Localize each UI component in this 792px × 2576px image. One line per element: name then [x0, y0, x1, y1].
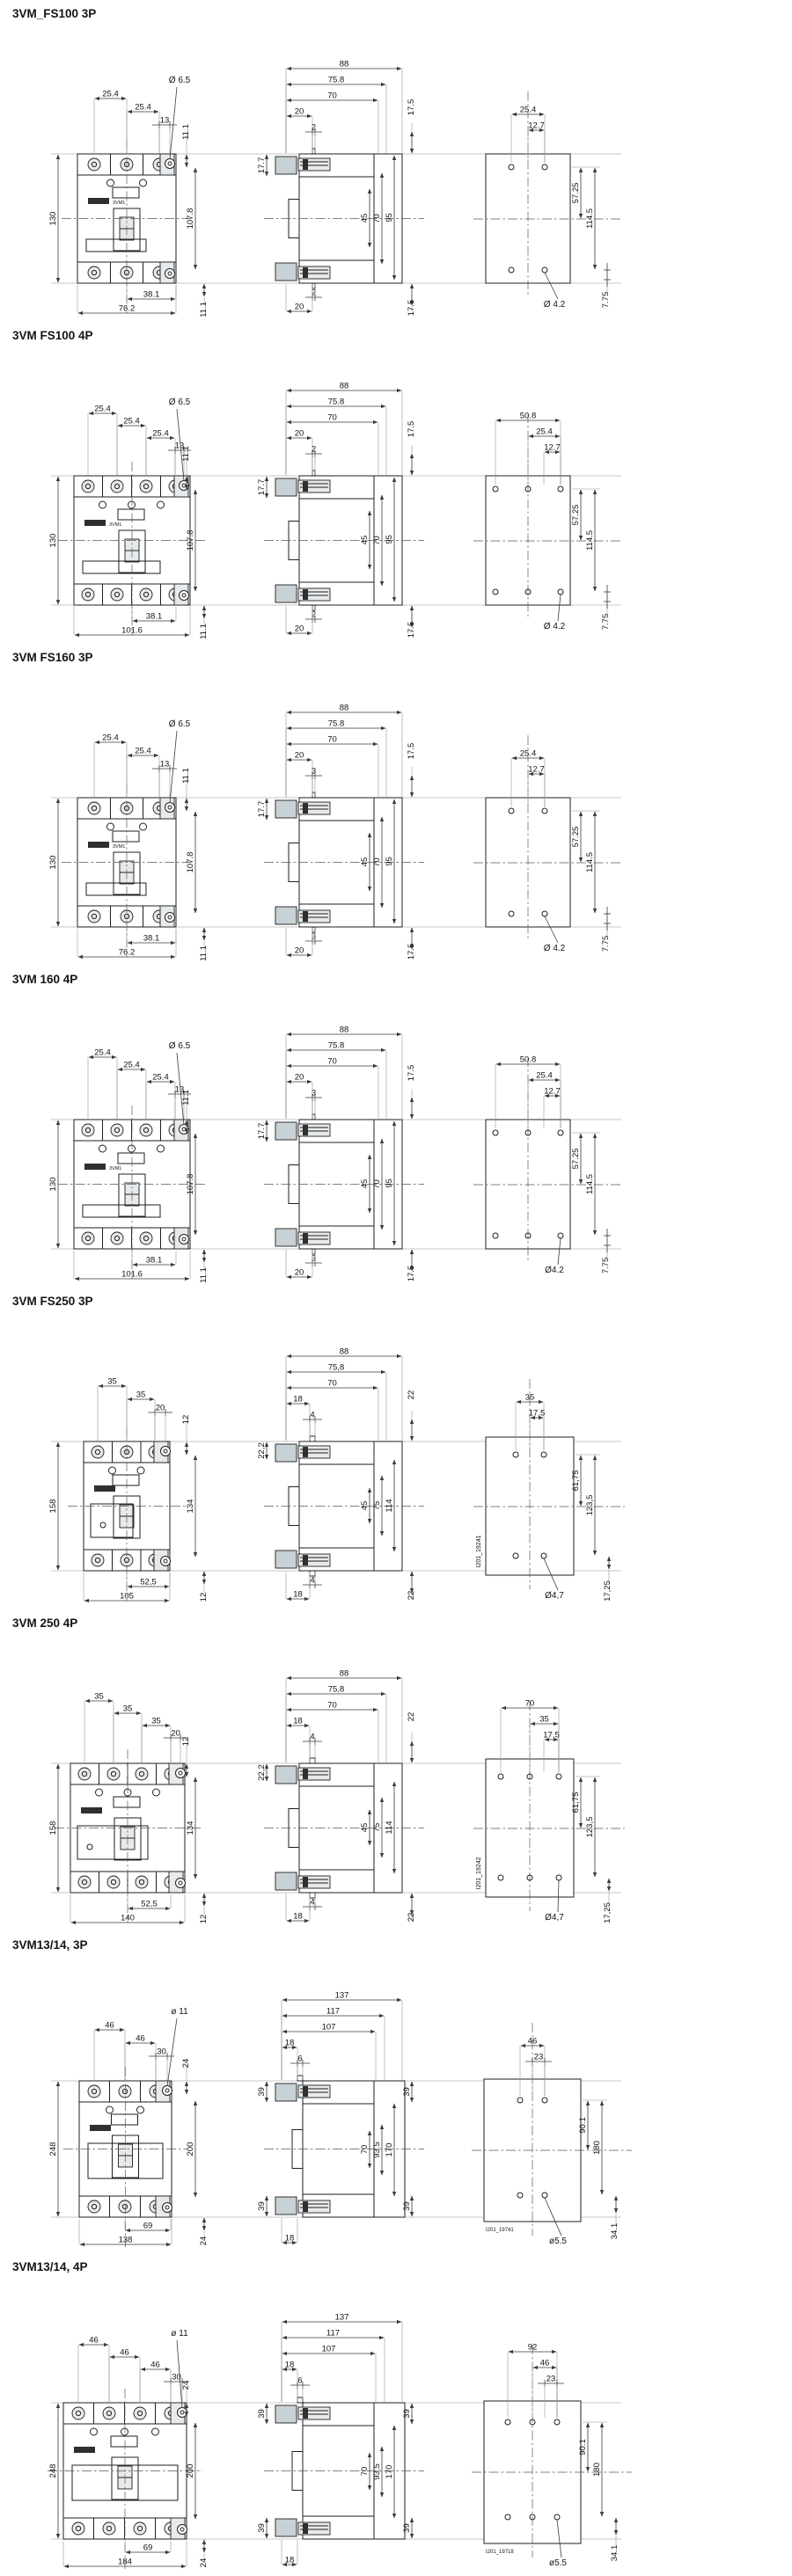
dim-label: 38.1 [143, 290, 160, 300]
dim-label: 35 [539, 1715, 549, 1725]
dim-label: 24 [181, 2381, 191, 2390]
dim-label: 35 [151, 1717, 161, 1726]
section-b-5: 3VM FS250 3P3535201215813452,5105128875,… [0, 1288, 792, 1609]
dim-label: 39 [402, 2409, 412, 2419]
dim-label: 17.5 [407, 1065, 416, 1082]
dim-label: 88 [340, 1669, 349, 1679]
diameter-callout: ø 11 [171, 2329, 188, 2339]
dim-label: 2 [312, 123, 316, 133]
dim-label: 12 [181, 1737, 191, 1747]
dim-label: 17.7 [257, 801, 267, 818]
dim-label: 4 [310, 1898, 314, 1908]
drill-pattern-view: 25.412.757.25114.57.75Ø 4.2 [473, 735, 621, 953]
dim-label: 95 [385, 535, 394, 544]
section-a-4: 3VM 160 4P3VM125.425.425.413Ø 6.511.1130… [0, 966, 792, 1288]
dim-label: 11.1 [181, 768, 191, 784]
dim-label: 200 [186, 2142, 195, 2156]
dim-label: 18 [293, 1912, 303, 1922]
dim-label: 23 [534, 2053, 544, 2062]
dim-label: 7.75 [601, 1258, 611, 1274]
dim-label: 69 [143, 2222, 153, 2231]
doc-id-label: I201_19741 [486, 2228, 514, 2233]
dim-label: 12.7 [544, 443, 561, 453]
dim-label: 76.2 [119, 948, 136, 958]
dim-label: 6 [297, 2376, 302, 2386]
drill-pattern-view: 462390.118034.1ø5.5I201_19741 [472, 2023, 632, 2246]
dim-label: 39 [257, 2523, 267, 2533]
dim-label: 20 [295, 303, 304, 312]
dim-label: 39 [402, 2201, 412, 2211]
section-b-6: 3VM 250 4P353535201215813452,5140128875,… [0, 1609, 792, 1931]
dim-label: 70 [327, 735, 337, 745]
dim-label: 17.5 [407, 1266, 416, 1282]
dim-label: 75.8 [328, 719, 345, 729]
drill-pattern-view: 3517,561,75123,517,25Ø4,7I201_19241 [473, 1379, 625, 1602]
dim-label: 12 [199, 1915, 209, 1924]
dim-label: 7.75 [601, 614, 611, 631]
dim-label: 35 [94, 1692, 104, 1702]
dim-label: 93.5 [372, 2463, 382, 2480]
dim-label: 70 [372, 1179, 382, 1189]
dim-label: 20 [295, 946, 304, 956]
doc-id-label: I201_19242 [476, 1857, 482, 1889]
dim-label: 137 [335, 2313, 349, 2323]
side-view: 8875,87018422,222224575114418 [257, 1347, 424, 1601]
side-view: 137117107186393939397093.517018 [257, 2313, 424, 2565]
dim-label: 25.4 [102, 90, 119, 99]
dim-label: 18 [285, 2361, 295, 2370]
dim-label: 6 [297, 2054, 302, 2064]
dim-label: 70 [327, 91, 337, 101]
dim-label: 75.8 [328, 398, 345, 407]
section-title: 3VM FS250 3P [12, 1295, 93, 1308]
dim-label: 70 [360, 2145, 370, 2155]
dim-label: 46 [150, 2361, 160, 2370]
dim-label: 92 [528, 2343, 538, 2353]
dim-label: 11.1 [199, 624, 209, 639]
dim-label: 52,5 [141, 1900, 158, 1909]
front-badge-label: 3VM1 [113, 844, 125, 850]
dim-label: 2 [312, 288, 316, 298]
diameter-callout: Ø 6.5 [169, 398, 191, 407]
dim-label: 17,5 [543, 1731, 560, 1740]
front-badge-label: 3VM1 [113, 201, 125, 206]
dim-label: 12 [181, 1415, 191, 1425]
dim-label: 7.75 [601, 936, 611, 952]
dim-label: 39 [257, 2087, 267, 2097]
dim-label: 170 [385, 2143, 394, 2157]
dim-label: 12.7 [528, 765, 545, 775]
dim-label: 130 [48, 212, 58, 226]
drill-pattern-view: 25.412.757.25114.57.75Ø 4.2 [473, 91, 621, 310]
dim-label: 7.75 [601, 292, 611, 309]
dim-label: 117 [326, 2007, 340, 2017]
dim-label: 20 [295, 429, 304, 439]
dim-label: 22,2 [257, 1442, 267, 1459]
dim-label: 17,25 [603, 1902, 612, 1923]
side-view: 8875.87020317.717.517.5457095320 [257, 1025, 424, 1282]
dim-label: 22,2 [257, 1764, 267, 1781]
dim-label: 3 [312, 1089, 316, 1098]
dim-label: 46 [89, 2336, 99, 2346]
dim-label: 57.25 [571, 1149, 581, 1170]
dim-label: 3 [312, 767, 316, 777]
dim-label: 70 [327, 1701, 337, 1711]
dim-label: 20 [295, 107, 304, 117]
dim-label: 13 [160, 116, 170, 126]
diameter-callout: Ø 4.2 [544, 944, 566, 953]
dim-label: 18 [285, 2234, 295, 2244]
dim-label: 25.4 [94, 1048, 111, 1058]
dim-label: 18 [293, 1395, 303, 1405]
dim-label: 12.7 [544, 1087, 561, 1097]
dim-label: 24 [199, 2558, 209, 2568]
front-badge-label: 3VM1 [109, 1166, 121, 1171]
dim-label: 12.7 [528, 121, 545, 131]
dim-label: 95 [385, 213, 394, 223]
dim-label: 50.8 [520, 1055, 537, 1065]
dim-label: 180 [592, 2141, 602, 2155]
dim-label: 17.7 [257, 479, 267, 496]
dim-label: 25.4 [123, 417, 140, 427]
dim-label: 70 [327, 413, 337, 423]
dim-label: 11.1 [181, 446, 191, 462]
dim-label: 75 [372, 1501, 382, 1511]
diameter-callout: Ø 6.5 [169, 1041, 191, 1051]
dim-label: 45 [360, 1501, 370, 1511]
dim-label: 35 [525, 1393, 535, 1403]
section-drawing-8: 3VM13/14, 4P46464630ø 112424820069184241… [0, 2253, 792, 2576]
dim-label: 20 [156, 1404, 165, 1413]
dim-label: 70 [372, 857, 382, 867]
diameter-callout: ø 11 [171, 2007, 188, 2017]
dim-label: 17.5 [407, 300, 416, 317]
diameter-callout: Ø4,7 [545, 1591, 564, 1601]
section-c-7: 3VM13/14, 3P464630ø 11242482006913824137… [0, 1931, 792, 2253]
dim-label: 25.4 [135, 747, 151, 756]
diameter-callout: Ø 4.2 [544, 622, 566, 631]
dim-label: 114.5 [585, 530, 595, 551]
dim-label: 107 [322, 2345, 336, 2354]
dim-label: 4 [310, 1576, 314, 1586]
dim-label: 69 [143, 2543, 153, 2553]
dim-label: 18 [293, 1717, 303, 1726]
section-title: 3VM13/14, 3P [12, 1938, 88, 1952]
dim-label: 105 [120, 1592, 134, 1602]
doc-id-label: I201_19241 [476, 1535, 482, 1567]
dim-label: 134 [186, 1821, 195, 1835]
dim-label: 57.25 [571, 505, 581, 526]
dim-label: 13 [160, 760, 170, 770]
dim-label: 90.1 [578, 2117, 588, 2134]
dim-label: 114.5 [585, 1174, 595, 1194]
section-drawing-3: 3VM FS160 3P3VM125.425.413Ø 6.511.113010… [0, 644, 792, 966]
dim-label: 123,5 [585, 1495, 595, 1516]
dim-label: 18 [285, 2039, 295, 2048]
section-c-8: 3VM13/14, 4P46464630ø 112424820069184241… [0, 2253, 792, 2576]
dim-label: 11.1 [181, 1090, 191, 1106]
dim-label: 200 [186, 2464, 195, 2478]
drill-pattern-view: 50.825.412.757.25114.57.75Ø4.2 [473, 1055, 621, 1276]
dim-label: 61,75 [571, 1470, 581, 1492]
dim-label: 38.1 [143, 934, 160, 944]
dim-label: 34.1 [610, 2545, 620, 2562]
section-drawing-7: 3VM13/14, 3P464630ø 11242482006913824137… [0, 1931, 792, 2253]
dim-label: 107.8 [186, 1174, 195, 1195]
dim-label: 24 [199, 2237, 209, 2246]
dim-label: 2 [312, 445, 316, 455]
dim-label: 22 [407, 1390, 416, 1400]
dim-label: 25.4 [536, 427, 553, 437]
section-title: 3VM13/14, 4P [12, 2260, 88, 2273]
dim-label: 137 [335, 1991, 349, 2001]
dim-label: 88 [340, 1347, 349, 1357]
side-view: 8875,87018422,222224575114418 [257, 1669, 424, 1923]
dim-label: 17.5 [407, 99, 416, 116]
diameter-callout: ø5.5 [549, 2237, 567, 2246]
section-title: 3VM FS100 4P [12, 329, 93, 342]
dim-label: 70 [360, 2467, 370, 2477]
dim-label: 4 [310, 1733, 314, 1742]
dim-label: 138 [119, 2236, 133, 2245]
dim-label: 45 [360, 1179, 370, 1189]
dim-label: 17.5 [407, 421, 416, 438]
dim-label: 20 [295, 1268, 304, 1278]
side-view: 137117107186393939397093.517018 [257, 1991, 424, 2244]
dim-label: 22 [407, 1591, 416, 1601]
dim-label: 25.4 [102, 733, 119, 743]
dim-label: 123,5 [585, 1817, 595, 1838]
dim-label: 25.4 [152, 429, 169, 439]
dim-label: 45 [360, 214, 370, 223]
dim-label: 248 [48, 2142, 58, 2156]
dim-label: 117 [326, 2329, 340, 2339]
dim-label: 114.5 [585, 852, 595, 872]
dim-label: 95 [385, 857, 394, 866]
dim-label: 88 [340, 382, 349, 391]
dim-label: 25.4 [123, 1061, 140, 1070]
side-view: 8875.87020217.717.517.5457095220 [257, 60, 424, 317]
dim-label: 46 [136, 2034, 145, 2044]
dim-label: 107.8 [186, 208, 195, 230]
dim-label: 57.25 [571, 827, 581, 848]
dim-label: 70 [327, 1379, 337, 1389]
dim-label: 180 [592, 2463, 602, 2477]
dim-label: 17.7 [257, 157, 267, 174]
section-title: 3VM 250 4P [12, 1616, 77, 1630]
section-a-2: 3VM FS100 4P3VM125.425.425.413Ø 6.511.11… [0, 322, 792, 644]
dim-label: 101.6 [121, 1270, 143, 1280]
dim-label: 39 [257, 2201, 267, 2211]
dim-label: 70 [525, 1699, 535, 1709]
dim-label: 75,8 [328, 1685, 345, 1695]
dim-label: 39 [402, 2087, 412, 2097]
dim-label: 25.4 [94, 405, 111, 414]
dim-label: 46 [540, 2359, 550, 2368]
dim-label: 101.6 [121, 626, 143, 636]
side-view: 8875.87020317.717.517.5457095320 [257, 704, 424, 960]
dim-label: 46 [105, 2021, 114, 2031]
dim-label: 130 [48, 856, 58, 870]
dim-label: 70 [372, 214, 382, 223]
dim-label: 134 [186, 1500, 195, 1514]
dim-label: 75 [372, 1823, 382, 1833]
dim-label: 130 [48, 1178, 58, 1192]
dim-label: 17.7 [257, 1123, 267, 1140]
dim-label: 130 [48, 534, 58, 548]
dim-label: 114.5 [585, 208, 595, 229]
section-title: 3VM FS160 3P [12, 651, 93, 664]
dim-label: 25.4 [520, 749, 537, 759]
dim-label: 93.5 [372, 2142, 382, 2158]
dim-label: 88 [340, 704, 349, 713]
dim-label: 34.1 [610, 2223, 620, 2240]
dim-label: 17,25 [603, 1580, 612, 1602]
dim-label: 140 [121, 1914, 135, 1923]
dim-label: 88 [340, 60, 349, 69]
dim-label: 17.5 [407, 622, 416, 639]
dim-label: 158 [48, 1821, 58, 1835]
section-title: 3VM_FS100 3P [12, 7, 96, 20]
dim-label: 57.25 [571, 183, 581, 204]
dim-label: 17.5 [407, 944, 416, 960]
dim-label: 107.8 [186, 530, 195, 551]
front-badge-label: 3VM1 [109, 522, 121, 528]
dim-label: 75,8 [328, 1363, 345, 1373]
dim-label: 22 [407, 1712, 416, 1722]
dim-label: 46 [528, 2037, 538, 2047]
dim-label: 11.1 [199, 302, 209, 317]
dim-label: 23 [546, 2375, 556, 2384]
dim-label: 11.1 [199, 1267, 209, 1283]
dim-label: 107 [322, 2023, 336, 2032]
dim-label: 52,5 [140, 1578, 157, 1587]
section-drawing-1: 3VM_FS100 3P3VM125.425.413Ø 6.511.113010… [0, 0, 792, 322]
dim-label: 24 [181, 2059, 191, 2069]
dim-label: 22 [407, 1913, 416, 1923]
dim-label: 50.8 [520, 412, 537, 421]
dim-label: 38.1 [146, 612, 163, 622]
dim-label: 20 [295, 751, 304, 761]
dim-label: 158 [48, 1500, 58, 1514]
section-drawing-5: 3VM FS250 3P3535201215813452,5105128875,… [0, 1288, 792, 1609]
section-drawing-2: 3VM FS100 4P3VM125.425.425.413Ø 6.511.11… [0, 322, 792, 644]
dim-label: 70 [372, 536, 382, 545]
dim-label: 75.8 [328, 76, 345, 85]
dim-label: 46 [120, 2348, 129, 2358]
dim-label: 75.8 [328, 1041, 345, 1051]
dim-label: 20 [295, 1073, 304, 1083]
drawing-sheet: 3VM_FS100 3P3VM125.425.413Ø 6.511.113010… [0, 0, 792, 2576]
dim-label: 39 [402, 2523, 412, 2533]
dim-label: 25.4 [536, 1071, 553, 1081]
dim-label: 3 [312, 1254, 316, 1264]
dim-label: 45 [360, 536, 370, 545]
section-a-3: 3VM FS160 3P3VM125.425.413Ø 6.511.113010… [0, 644, 792, 966]
dim-label: 70 [327, 1057, 337, 1067]
dim-label: 76.2 [119, 304, 136, 314]
dim-label: 45 [360, 857, 370, 867]
dim-label: 17,5 [529, 1409, 546, 1419]
doc-id-label: I201_19718 [486, 2550, 514, 2555]
dim-label: 18 [285, 2556, 295, 2565]
section-title: 3VM 160 4P [12, 973, 77, 986]
dim-label: 107.8 [186, 852, 195, 873]
dim-label: 114 [385, 1821, 394, 1834]
dim-label: 17.5 [407, 743, 416, 760]
dim-label: 35 [123, 1704, 133, 1714]
dim-label: 35 [107, 1377, 117, 1387]
dim-label: 25.4 [520, 106, 537, 115]
dim-label: 90.1 [578, 2439, 588, 2456]
dim-label: 25.4 [152, 1073, 169, 1083]
drill-pattern-view: 50.825.412.757.25114.57.75Ø 4.2 [473, 412, 621, 632]
dim-label: 248 [48, 2464, 58, 2478]
dim-label: 39 [257, 2409, 267, 2419]
dim-label: 170 [385, 2465, 394, 2479]
section-a-1: 3VM_FS100 3P3VM125.425.413Ø 6.511.113010… [0, 0, 792, 322]
section-drawing-6: 3VM 250 4P353535201215813452,5140128875,… [0, 1609, 792, 1931]
diameter-callout: ø5.5 [549, 2558, 567, 2568]
dim-label: 11.1 [199, 945, 209, 961]
diameter-callout: Ø 4.2 [544, 300, 566, 310]
dim-label: 61,75 [571, 1792, 581, 1813]
dim-label: 20 [295, 624, 304, 634]
dim-label: 2 [312, 610, 316, 620]
dim-label: 114 [385, 1499, 394, 1512]
dim-label: 12 [199, 1593, 209, 1602]
dim-label: 18 [293, 1590, 303, 1600]
diameter-callout: Ø 6.5 [169, 719, 191, 729]
dim-label: 11.1 [181, 124, 191, 140]
dim-label: 95 [385, 1179, 394, 1188]
dim-label: 45 [360, 1823, 370, 1833]
drill-pattern-view: 92462390.118034.1ø5.5I201_19718 [472, 2343, 632, 2569]
diameter-callout: Ø4.2 [545, 1266, 564, 1275]
diameter-callout: Ø 6.5 [169, 76, 191, 85]
dim-label: 184 [118, 2558, 132, 2567]
dim-label: 20 [171, 1729, 180, 1739]
diameter-callout: Ø4,7 [545, 1913, 564, 1923]
dim-label: 35 [136, 1390, 146, 1400]
dim-label: 30 [157, 2047, 166, 2057]
section-drawing-4: 3VM 160 4P3VM125.425.425.413Ø 6.511.1130… [0, 966, 792, 1288]
dim-label: 4 [310, 1411, 314, 1420]
drill-pattern-view: 703517,561,75123,517,25Ø4,7I201_19242 [473, 1699, 625, 1923]
dim-label: 38.1 [146, 1256, 163, 1266]
dim-label: 3 [312, 932, 316, 942]
side-view: 8875.87020217.717.517.5457095220 [257, 382, 424, 639]
dim-label: 25.4 [135, 103, 151, 113]
dim-label: 88 [340, 1025, 349, 1035]
